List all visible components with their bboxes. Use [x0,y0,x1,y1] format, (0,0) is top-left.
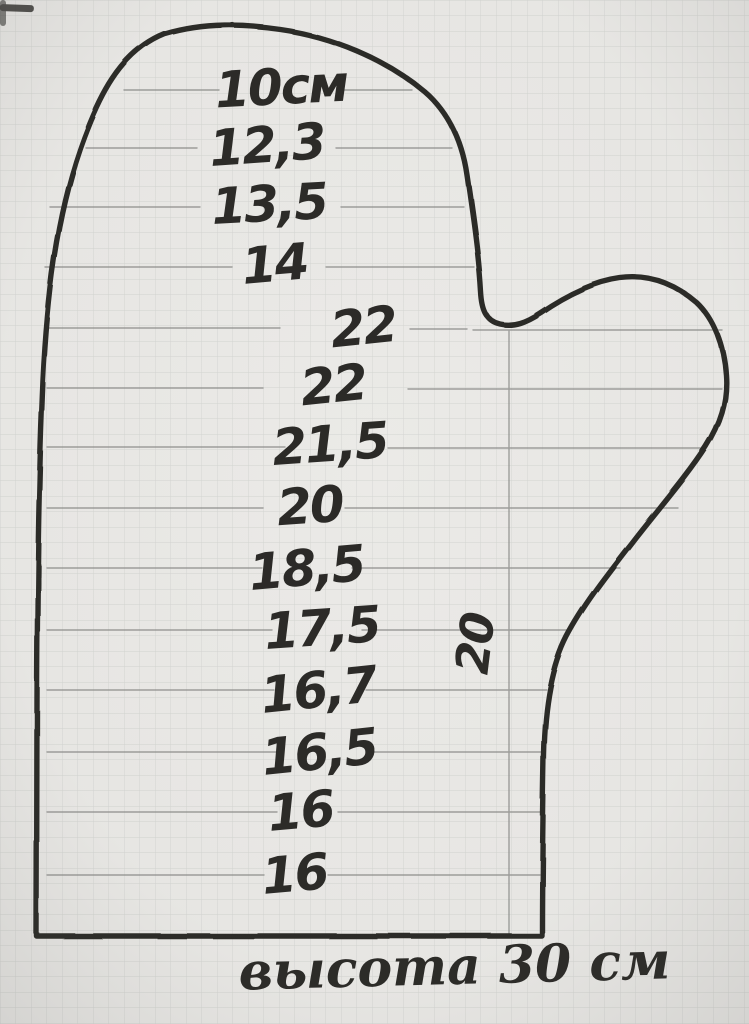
mitten-pattern-photo: 10см 12,3 13,5 14 22 22 21,5 20 18,5 17,… [0,0,749,1024]
pattern-canvas: 10см 12,3 13,5 14 22 22 21,5 20 18,5 17,… [0,0,749,1024]
photo-vignette [0,0,749,1024]
